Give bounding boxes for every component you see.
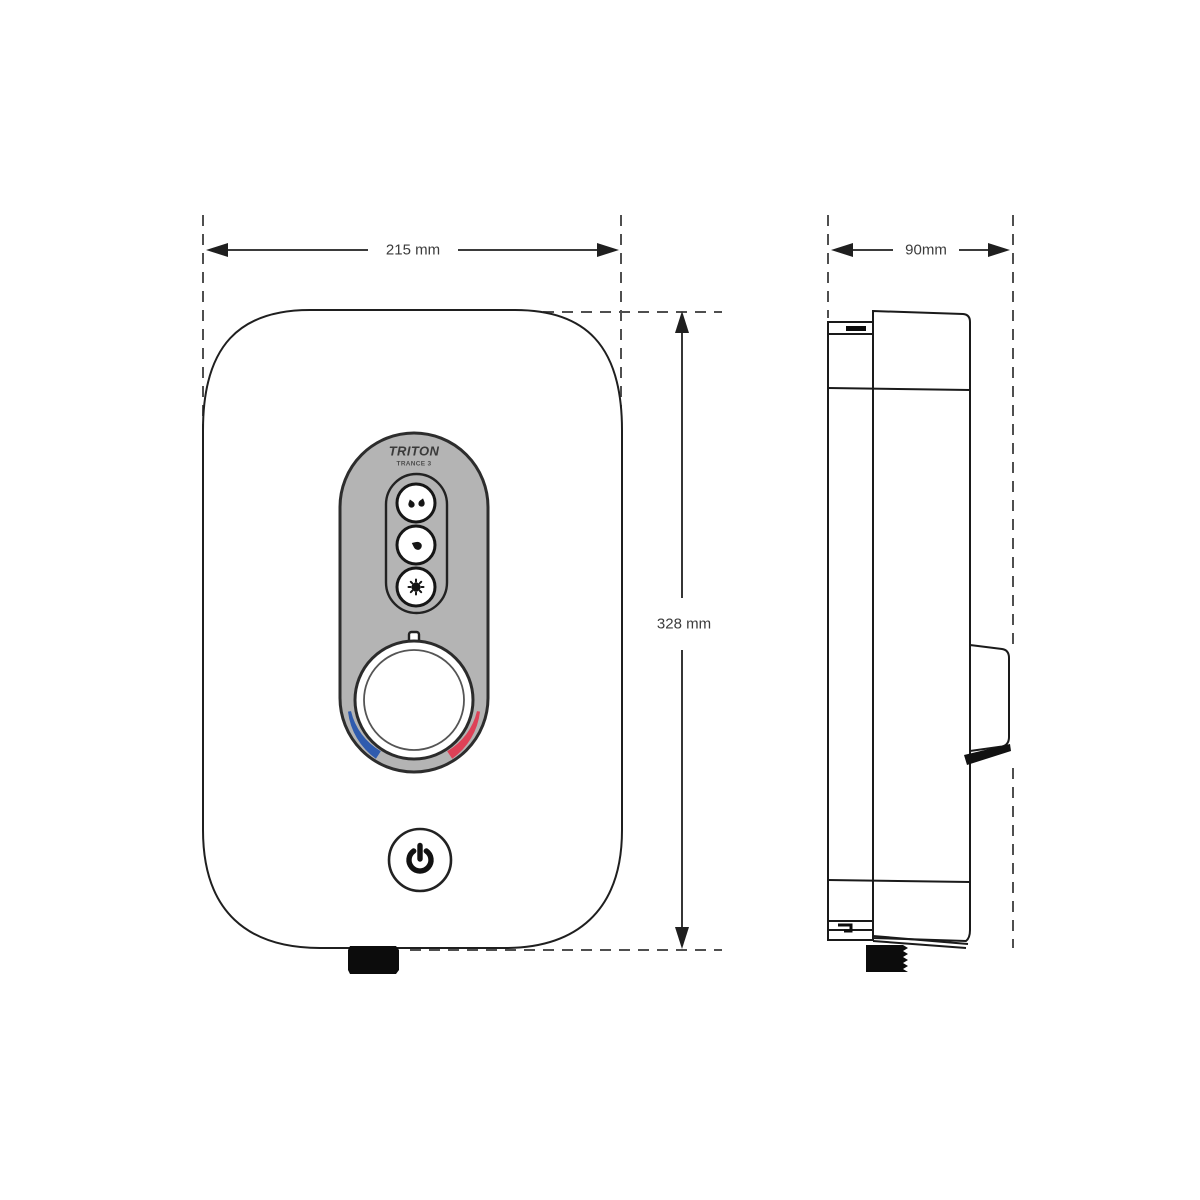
power-button <box>389 829 451 891</box>
brand-logo-text: TRITON <box>389 444 440 459</box>
dial-knob-face <box>364 650 464 750</box>
side-water-outlet <box>866 945 908 972</box>
front-water-outlet <box>348 946 399 974</box>
side-top-slot <box>846 326 866 331</box>
line-art <box>0 0 1200 1200</box>
starburst-dot-icon <box>409 580 424 595</box>
side-depth-label: 90mm <box>899 241 953 260</box>
model-name-text: TRANCE 3 <box>397 461 432 468</box>
arrow-right-icon <box>597 243 619 257</box>
side-view <box>828 215 1013 972</box>
side-dial-knob-profile <box>964 645 1011 765</box>
front-width-label: 215 mm <box>380 241 446 260</box>
dimension-diagram: 215 mm 90mm 328 mm TRITON TRANCE 3 <box>0 0 1200 1200</box>
front-view <box>203 215 722 974</box>
arrow-right-icon <box>988 243 1010 257</box>
spray-eco-button <box>397 568 435 606</box>
side-body-outline <box>828 311 970 948</box>
spray-high-button <box>397 484 435 522</box>
arrow-left-icon <box>831 243 853 257</box>
spray-medium-button <box>397 526 435 564</box>
arrow-up-icon <box>675 311 689 333</box>
front-height-label: 328 mm <box>651 615 717 634</box>
arrow-left-icon <box>206 243 228 257</box>
arrow-down-icon <box>675 927 689 949</box>
